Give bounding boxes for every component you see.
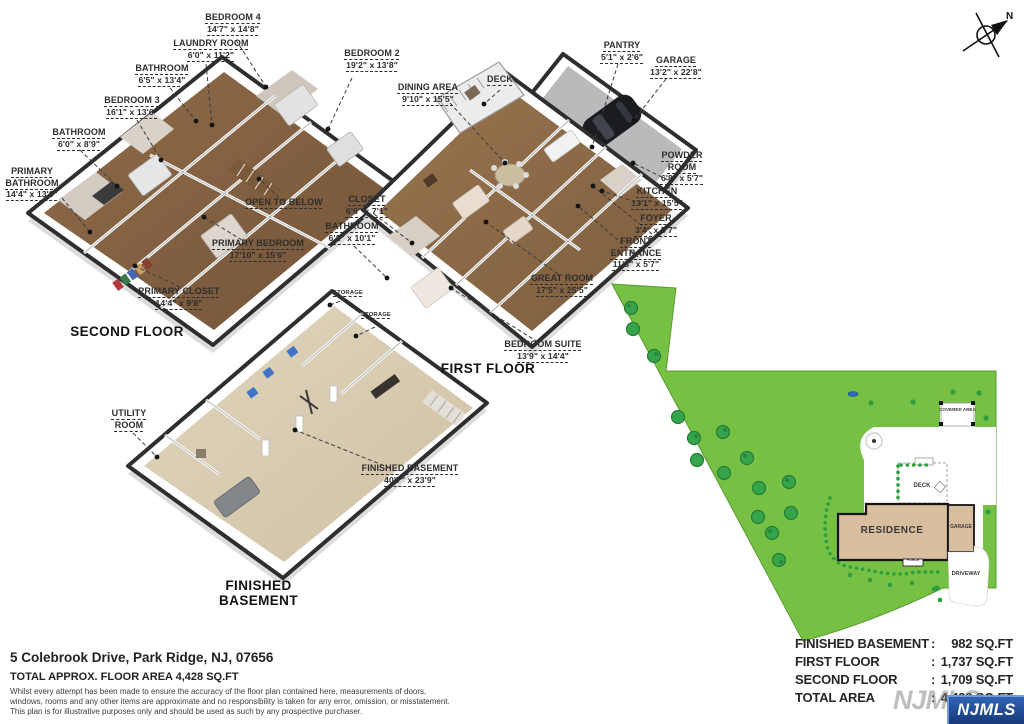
room-dims: 17'5" x 25'5" [512,285,612,296]
label-bedroom-2: BEDROOM 2 19'2" x 13'8" [324,48,420,71]
room-dims: 11'8" x 5'7" [597,259,675,270]
label-dining-area: DINING AREA 9'10" x 15'5" [382,82,474,105]
label-great-room: GREAT ROOM 17'5" x 25'5" [512,273,612,296]
room-name: BATHROOM [33,127,125,139]
room-dims: 16'1" x 13'6" [84,107,180,118]
label-bathroom-2f-b: BATHROOM 6'0" x 8'9" [33,127,125,150]
disclaimer: Whilst every attempt has been made to en… [10,687,450,717]
room-dims: 6'5" x 13'4" [116,75,208,86]
room-name: STORAGE [358,312,394,320]
room-name: BATHROOM [306,221,398,233]
summary-value: 982 SQ.FT [951,636,1013,651]
room-dims: 17'10" x 15'6" [212,250,304,261]
room-dims: 6'8" x 5'7" [647,173,717,184]
label-bedroom-3: BEDROOM 3 16'1" x 13'6" [84,95,180,118]
second-floor-title: SECOND FLOOR [62,324,192,339]
room-name: PRIMARY BEDROOM [212,238,304,250]
label-foyer: FOYER 3'4" x 5'7" [621,213,691,236]
covered-area-box [939,401,975,426]
pond-marker [848,392,858,397]
label-bathroom-1f: BATHROOM 6'2" x 10'1" [306,221,398,244]
room-name: BEDROOM 3 [84,95,180,107]
label-deck-1f: DECK [479,74,521,86]
label-powder-room: POWDER ROOM 6'8" x 5'7" [647,150,717,185]
label-bedroom-suite: BEDROOM SUITE 13'9" x 14'4" [493,339,593,362]
first-floor-title: FIRST FLOOR [433,361,543,376]
room-name: LAUNDRY ROOM [152,38,270,50]
room-name: PRIMARY BATHROOM [0,166,64,189]
room-dims: 40'7" x 23'9" [355,475,465,486]
room-dims: 3'4" x 5'7" [621,225,691,236]
room-name: STORAGE [330,290,366,298]
summary-separator: : [931,636,935,651]
basement-title: FINISHED BASEMENT [186,578,331,608]
room-name: PRIMARY CLOSET [134,286,224,298]
summary-label: SECOND FLOOR [795,672,897,687]
room-dims: 9'10" x 15'5" [382,94,474,105]
total-floor-area: TOTAL APPROX. FLOOR AREA 4,428 SQ.FT [10,671,239,683]
room-name: OPEN TO BELOW [234,197,334,209]
room-name: BEDROOM SUITE [493,339,593,351]
room-name: KITCHEN [611,186,703,198]
label-closet-1f: CLOSET 6'6" x 7'1" [321,194,413,217]
room-name: BATHROOM [116,63,208,75]
room-name: BEDROOM 4 [185,12,281,24]
room-name: PANTRY [582,40,662,52]
label-utility-room: UTILITY ROOM [97,408,161,431]
room-name: FRONT ENTRANCE [597,236,675,259]
label-open-to-below: OPEN TO BELOW [234,197,334,209]
room-dims: 6'0" x 8'9" [33,139,125,150]
room-dims: 13'2" x 22'8" [631,67,721,78]
room-dims: 14'7" x 14'8" [185,24,281,35]
njmls-logo: NJMLS [947,695,1024,724]
room-name: UTILITY ROOM [97,408,161,431]
disclaimer-line: windows, rooms and any other items are a… [10,697,450,707]
room-name: DINING AREA [382,82,474,94]
label-storage-a: STORAGE [330,290,366,298]
room-dims: 6'0" x 11'2" [152,50,270,61]
room-name: FINISHED BASEMENT [355,463,465,475]
summary-row: FINISHED BASEMENT : 982 SQ.FT [795,636,1013,654]
room-name: CLOSET [321,194,413,206]
summary-label: TOTAL AREA [795,690,875,705]
room-name: GREAT ROOM [512,273,612,285]
summary-value: 1,737 SQ.FT [941,654,1013,669]
summary-label: FIRST FLOOR [795,654,879,669]
disclaimer-line: This plan is for illustrative purposes o… [10,707,450,717]
floor-plan-sheet: BEDROOM 4 14'7" x 14'8" LAUNDRY ROOM 6'0… [0,0,1024,724]
site-label-covered-area: COVERED AREA [939,407,976,412]
room-name: POWDER ROOM [647,150,717,173]
label-laundry-room: LAUNDRY ROOM 6'0" x 11'2" [152,38,270,61]
room-dims: 19'2" x 13'8" [324,60,420,71]
label-front-entrance: FRONT ENTRANCE 11'8" x 5'7" [597,236,675,271]
room-name: DECK [479,74,521,86]
summary-label: FINISHED BASEMENT [795,636,929,651]
room-dims: 14'4" x 9'8" [134,298,224,309]
summary-row: FIRST FLOOR : 1,737 SQ.FT [795,654,1013,672]
label-storage-b: STORAGE [358,312,394,320]
site-label-residence: RESIDENCE [842,525,942,537]
room-name: FOYER [621,213,691,225]
label-bedroom-4: BEDROOM 4 14'7" x 14'8" [185,12,281,35]
label-primary-bathroom: PRIMARY BATHROOM 14'4" x 13'0" [0,166,64,201]
room-dims: 6'6" x 7'1" [321,206,413,217]
room-dims: 14'4" x 13'0" [0,189,64,200]
room-dims: 13'1" x 15'5" [611,198,703,209]
site-plan [612,284,996,641]
site-label-driveway: DRIVEWAY [946,571,986,577]
label-kitchen: KITCHEN 13'1" x 15'5" [611,186,703,209]
summary-separator: : [931,654,935,669]
site-label-garage: GARAGE [945,525,977,531]
site-label-deck: DECK [906,483,938,490]
label-primary-bedroom: PRIMARY BEDROOM 17'10" x 15'6" [212,238,304,261]
site-label-porch: PORCH [901,558,925,562]
label-primary-closet: PRIMARY CLOSET 14'4" x 9'8" [134,286,224,309]
room-name: BEDROOM 2 [324,48,420,60]
disclaimer-line: Whilst every attempt has been made to en… [10,687,450,697]
property-address: 5 Colebrook Drive, Park Ridge, NJ, 07656 [10,650,273,665]
room-dims: 6'2" x 10'1" [306,233,398,244]
compass-icon [963,13,1008,57]
room-name: GARAGE [631,55,721,67]
label-finished-basement-dims: FINISHED BASEMENT 40'7" x 23'9" [355,463,465,486]
label-bathroom-2f-a: BATHROOM 6'5" x 13'4" [116,63,208,86]
compass-north-label: N [1006,11,1013,22]
label-garage: GARAGE 13'2" x 22'8" [631,55,721,78]
